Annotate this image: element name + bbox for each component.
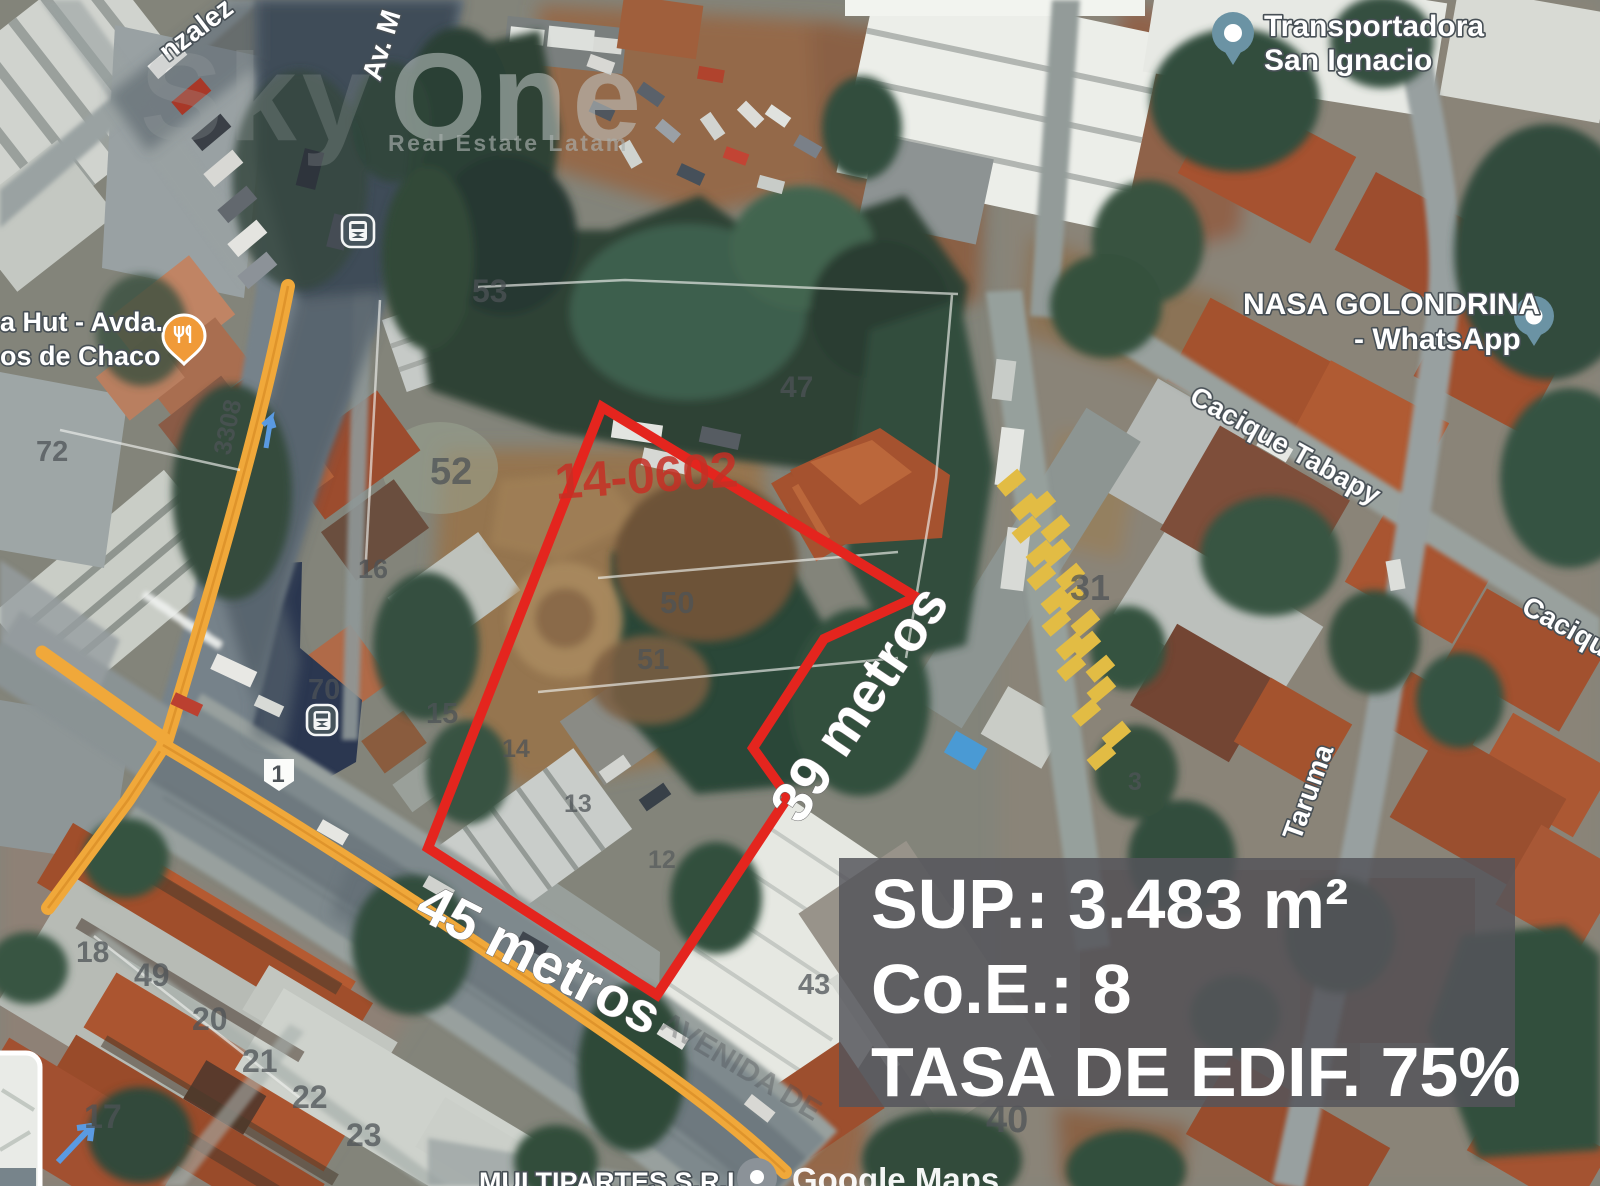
svg-text:18: 18: [76, 936, 109, 969]
svg-text:Transportadora: Transportadora: [1264, 10, 1484, 43]
svg-text:51: 51: [637, 644, 669, 676]
svg-text:21: 21: [242, 1043, 278, 1079]
svg-text:47: 47: [780, 371, 813, 404]
svg-text:14: 14: [502, 735, 530, 763]
svg-text:22: 22: [292, 1079, 328, 1115]
svg-text:52: 52: [430, 451, 472, 493]
svg-text:23: 23: [346, 1117, 382, 1153]
svg-text:SUP.: 3.483 m²: SUP.: 3.483 m²: [871, 865, 1348, 943]
svg-text:a Hut - Avda.: a Hut - Avda.: [0, 307, 163, 337]
svg-text:17: 17: [84, 1098, 122, 1136]
svg-text:Sky: Sky: [140, 29, 376, 167]
svg-text:3: 3: [1128, 768, 1142, 796]
svg-text:53: 53: [472, 273, 508, 309]
svg-text:Google Maps: Google Maps: [792, 1161, 999, 1186]
svg-text:- WhatsApp: - WhatsApp: [1354, 323, 1521, 356]
svg-text:31: 31: [1070, 567, 1110, 608]
svg-text:TASA DE EDIF. 75%: TASA DE EDIF. 75%: [871, 1033, 1521, 1111]
svg-text:12: 12: [648, 846, 676, 874]
svg-text:MULTIPARTES S.R.L: MULTIPARTES S.R.L: [479, 1167, 744, 1186]
svg-text:49: 49: [134, 957, 170, 993]
svg-text:15: 15: [426, 698, 458, 730]
svg-text:Co.E.: 8: Co.E.: 8: [871, 950, 1132, 1028]
svg-text:NASA GOLONDRINA: NASA GOLONDRINA: [1243, 288, 1540, 321]
svg-text:os de Chaco: os de Chaco: [0, 341, 161, 371]
svg-text:72: 72: [36, 436, 68, 468]
svg-text:50: 50: [660, 585, 694, 620]
svg-text:70: 70: [308, 674, 340, 706]
svg-text:43: 43: [798, 969, 830, 1001]
svg-text:Real Estate Latam: Real Estate Latam: [388, 130, 629, 156]
svg-text:San Ignacio: San Ignacio: [1264, 44, 1432, 77]
svg-text:13: 13: [564, 790, 592, 818]
svg-text:1: 1: [271, 761, 284, 788]
svg-text:16: 16: [358, 554, 388, 584]
svg-text:20: 20: [192, 1001, 228, 1037]
